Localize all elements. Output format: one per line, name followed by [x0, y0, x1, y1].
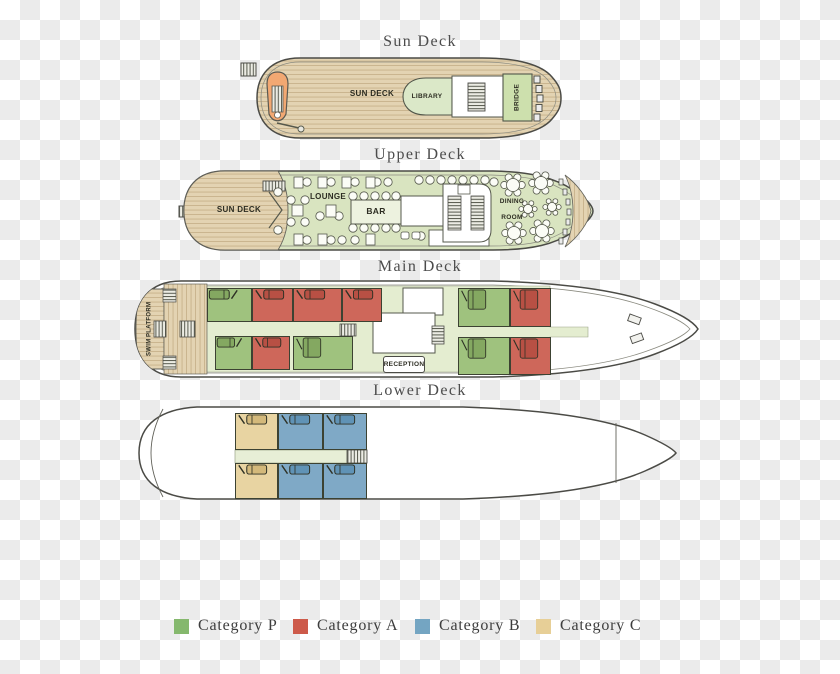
double-bed-icon [294, 337, 322, 358]
category-a-swatch [293, 619, 308, 634]
single-bed-icon [236, 464, 268, 475]
legend-item-category-a: Category A [293, 617, 398, 635]
sun-deck-title: Sun Deck [0, 33, 840, 51]
single-bed-icon [208, 289, 240, 300]
legend-item-category-p: Category P [174, 617, 278, 635]
lower-deck [133, 404, 678, 502]
swim-platform-label: SWIM PLATFORM [139, 300, 161, 358]
lower-deck-title: Lower Deck [0, 382, 840, 400]
fixture [412, 232, 420, 239]
single-bed-icon [253, 337, 282, 348]
cabin-category-B [323, 413, 367, 450]
main-deck-title: Main Deck [0, 258, 840, 276]
category-b-label: Category B [439, 617, 520, 635]
cabin-category-B [323, 463, 367, 499]
library-label: LIBRARY [397, 93, 457, 100]
category-c-label: Category C [560, 617, 641, 635]
single-bed-icon [236, 414, 268, 425]
double-bed-icon [511, 338, 539, 359]
upper-deck: SUN DECK LOUNGE BAR DINING ROOM [179, 170, 595, 251]
category-a-label: Category A [317, 617, 398, 635]
lower-cabin-layer [133, 404, 678, 502]
cabin-category-C [235, 463, 278, 499]
cabin-category-P [207, 288, 252, 322]
cabin-category-B [278, 463, 323, 499]
cabin-category-P [293, 336, 353, 370]
cabin-category-A [510, 288, 551, 327]
double-bed-icon [459, 338, 487, 359]
cabin-category-A [252, 336, 290, 370]
galley-room [401, 196, 443, 226]
reception-desk: RECEPTION [383, 356, 425, 373]
single-bed-icon [216, 337, 244, 348]
sun-deck-area-label: SUN DECK [342, 90, 402, 99]
dinghy-icon [267, 72, 288, 121]
cabin-category-A [252, 288, 293, 322]
double-bed-icon [511, 289, 539, 310]
bridge-label: BRIDGE [503, 74, 532, 121]
cabin-category-A [510, 337, 551, 375]
cabin-category-A [342, 288, 382, 322]
category-b-swatch [415, 619, 430, 634]
single-bed-icon [279, 414, 311, 425]
sun-deck: SUN DECK LIBRARY BRIDGE [240, 57, 562, 139]
single-bed-icon [343, 289, 374, 300]
stairs-icon [448, 196, 461, 230]
elevator [458, 185, 470, 194]
stairs-icon [468, 83, 485, 111]
single-bed-icon [294, 289, 326, 300]
single-bed-icon [324, 414, 356, 425]
legend-item-category-b: Category B [415, 617, 520, 635]
main-deck: SWIM PLATFORM RECEPTION [133, 280, 700, 378]
single-bed-icon [324, 464, 356, 475]
upper-deck-title: Upper Deck [0, 146, 840, 164]
single-bed-icon [253, 289, 285, 300]
legend-item-category-c: Category C [536, 617, 641, 635]
swim-label-line1: SWIM [146, 339, 155, 357]
swim-label-line2: PLATFORM [146, 302, 155, 337]
bar-label: BAR [351, 207, 401, 216]
dining-room-label-2: ROOM [493, 214, 531, 221]
cabin-category-P [215, 336, 252, 370]
cabin-category-A [293, 288, 342, 322]
category-c-swatch [536, 619, 551, 634]
category-p-swatch [174, 619, 189, 634]
cabin-category-P [458, 288, 510, 327]
upper-sun-deck-label: SUN DECK [206, 206, 272, 215]
double-bed-icon [459, 289, 487, 310]
cabin-category-P [458, 337, 510, 375]
single-bed-icon [279, 464, 311, 475]
category-p-label: Category P [198, 617, 278, 635]
gangway-icon [241, 63, 256, 76]
cabin-category-C [235, 413, 278, 450]
dining-room-label-1: DINING [493, 198, 531, 205]
lounge-label: LOUNGE [298, 193, 358, 202]
stairs-icon [471, 196, 484, 230]
fixture [401, 232, 409, 239]
cabin-category-B [278, 413, 323, 450]
reception-label: RECEPTION [384, 361, 425, 368]
